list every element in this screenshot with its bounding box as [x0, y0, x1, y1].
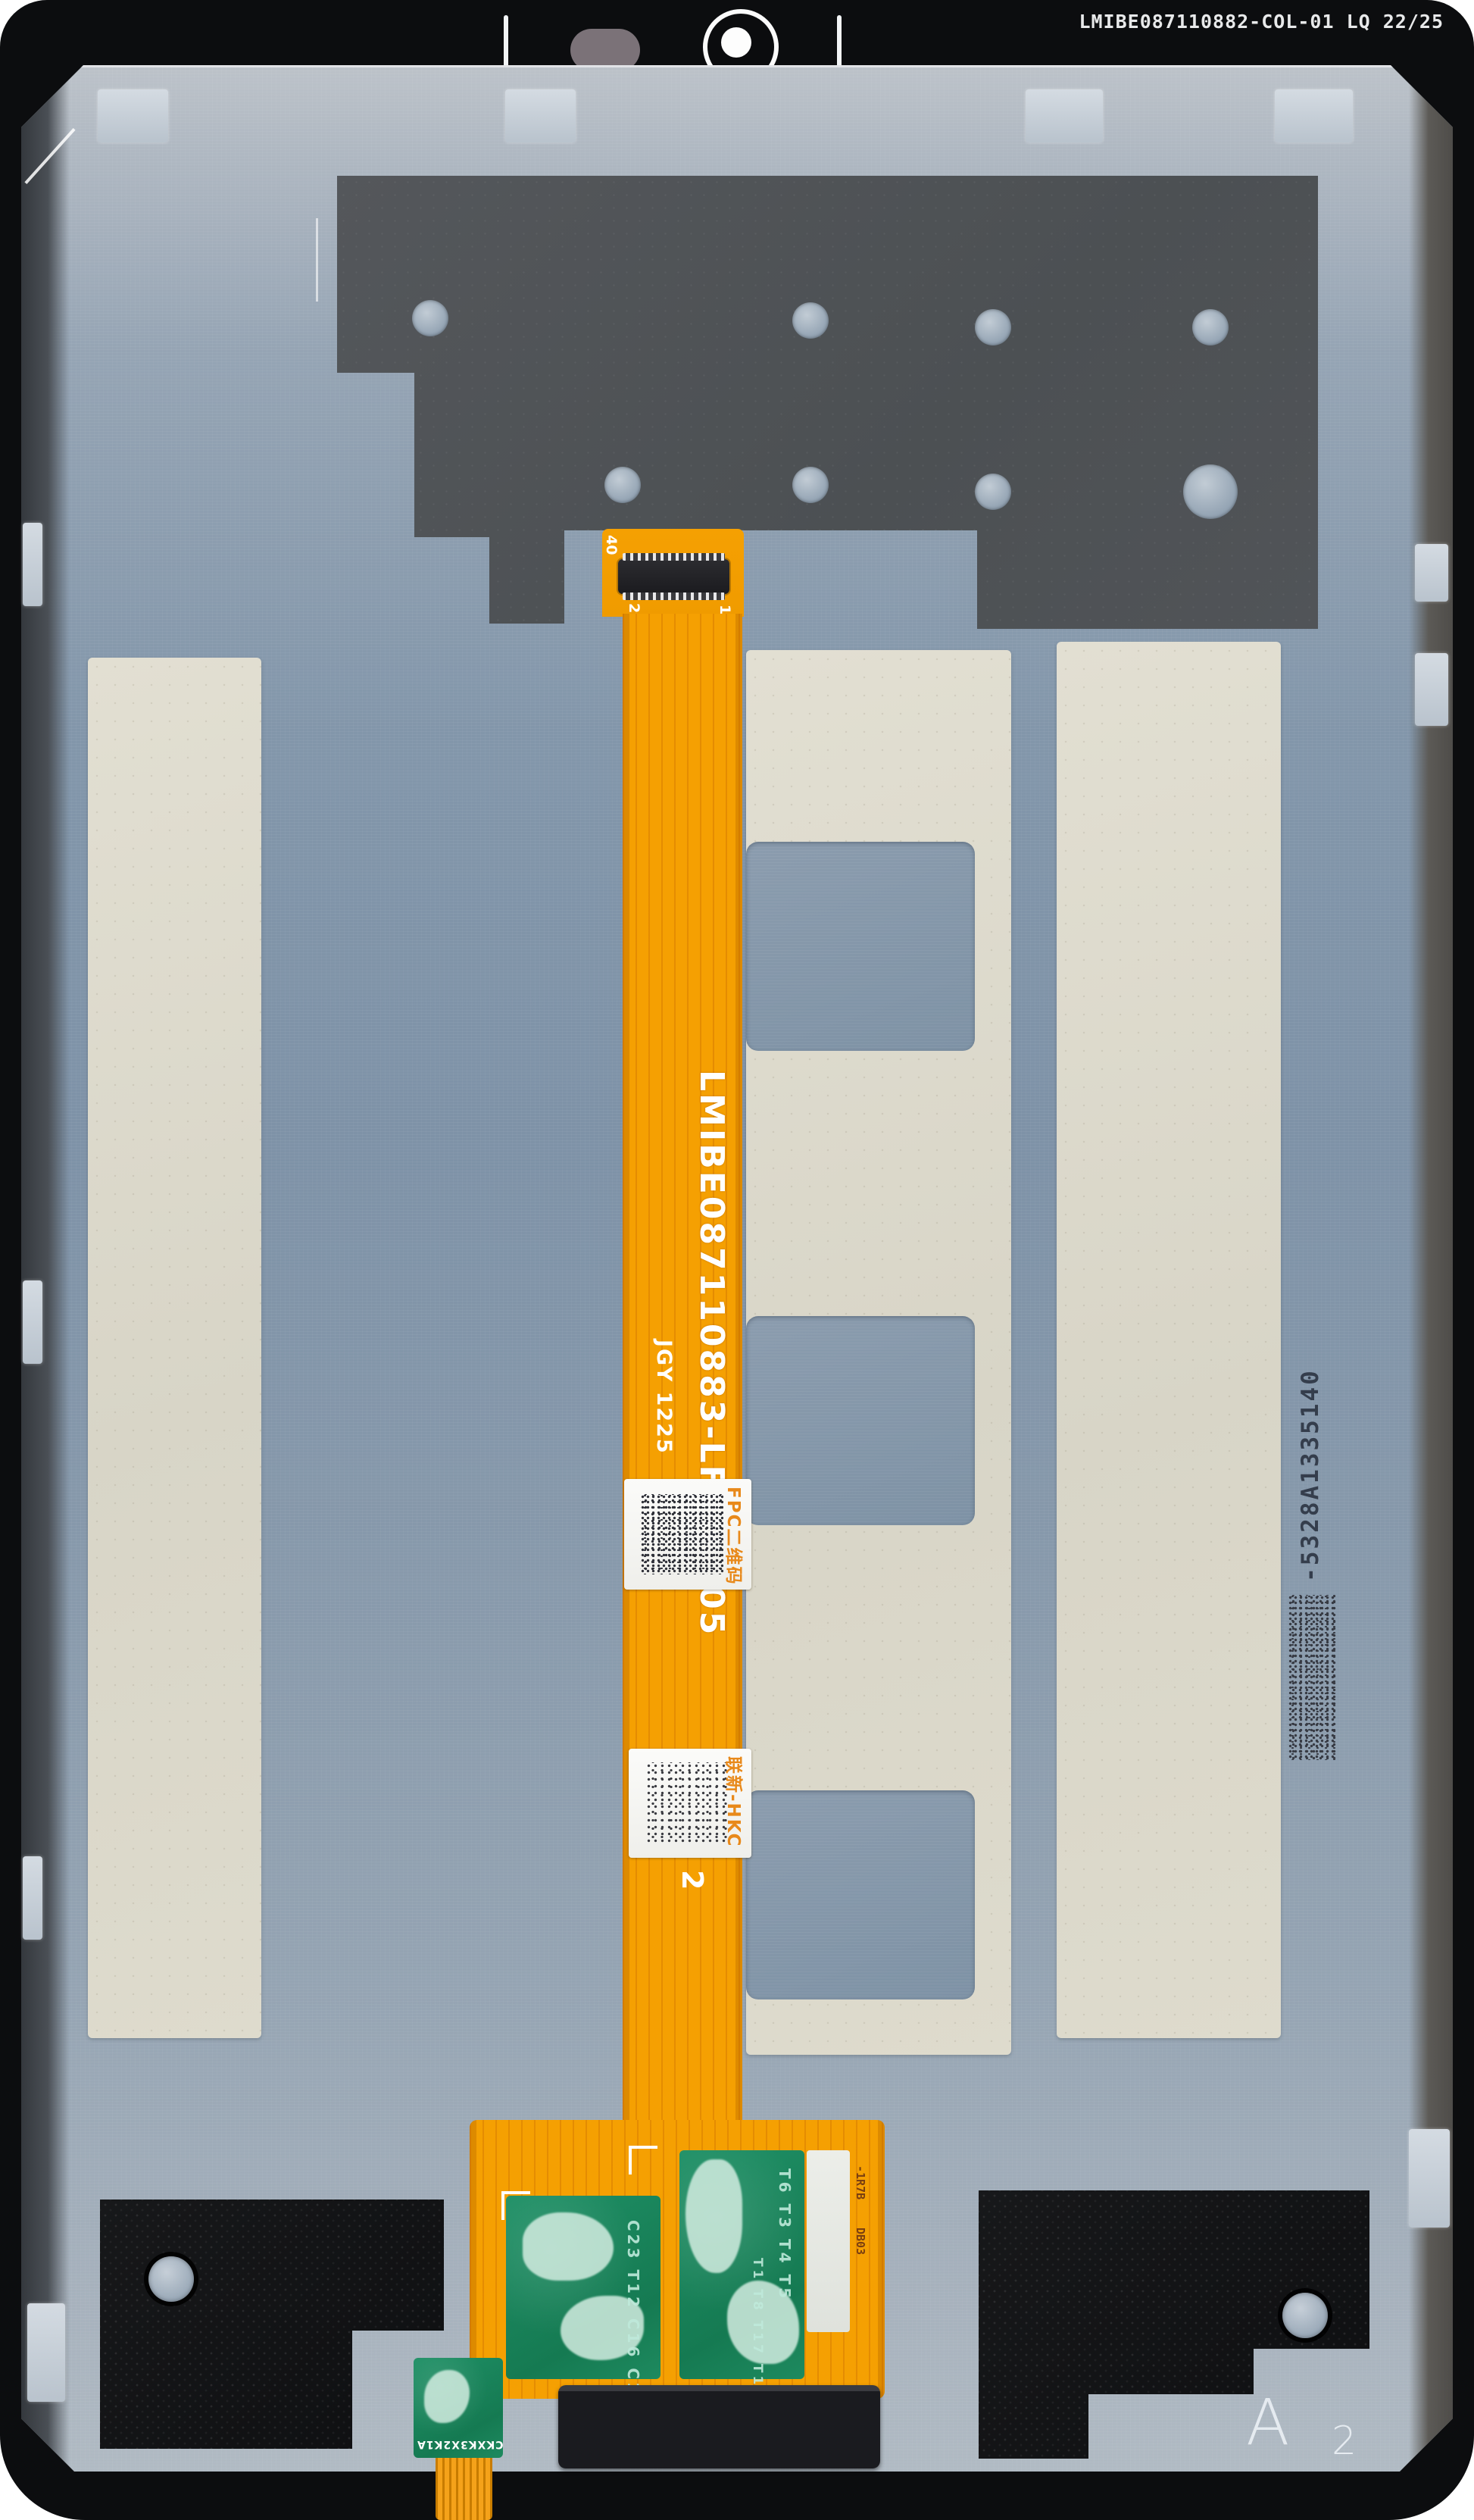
front-camera-lens	[721, 27, 751, 58]
board-connector	[618, 559, 729, 594]
screw-hole	[604, 467, 641, 503]
plate-right-wall	[1409, 65, 1453, 2472]
edge-tab	[27, 2303, 65, 2402]
plate-qr-code	[1288, 1595, 1336, 1760]
pcb-left-refdes: C23 T12 C16 C14	[624, 2220, 642, 2409]
shield-sticker-right	[1057, 642, 1281, 2038]
edge-tab	[98, 89, 168, 142]
conformal-coating-blob	[685, 2159, 742, 2273]
edge-tab	[1415, 653, 1448, 726]
screw-hole-large	[1183, 464, 1238, 519]
screw-hole	[975, 474, 1011, 510]
flex-side-text-2: DB03	[854, 2228, 867, 2255]
plate-left-wall	[21, 65, 70, 2472]
edge-tab	[1415, 544, 1448, 602]
pin-label-40: 40	[603, 535, 620, 555]
connector-pins-bottom	[623, 592, 725, 600]
edge-tab	[1275, 89, 1353, 142]
fpc-qr-caption: FPC二维码	[723, 1487, 748, 1585]
hkc-qr-caption: 联新-HKC	[723, 1756, 748, 1847]
lcd-output-connector	[558, 2385, 880, 2468]
white-stiffener-strip	[807, 2150, 850, 2332]
connector-pins-top	[623, 553, 725, 561]
fpc-datamatrix-code	[640, 1494, 723, 1574]
ladder-window	[746, 1316, 975, 1525]
edge-tab	[23, 1856, 42, 1940]
flex-digit-mark: 2	[676, 1870, 709, 1890]
touch-flex-tail	[436, 2458, 492, 2520]
screw-hole	[792, 302, 829, 339]
screw-hole	[792, 467, 829, 503]
grade-mark-number: 2	[1332, 2418, 1357, 2464]
pcb-right-refdes-2: T1 T8 T17 T16	[750, 2258, 765, 2400]
touch-flex-code: CKXK3X2K1A	[417, 2438, 503, 2450]
fiducial-bracket	[629, 2146, 657, 2175]
flex-date-code: JGY 1225	[652, 1340, 676, 1455]
screw-hole	[1192, 309, 1229, 345]
frame-part-number: LMIBE087110882-COL-01 LQ 22/25	[1079, 11, 1444, 33]
tablet-lcd-assembly-photo: LMIBE087110882-COL-01 LQ 22/25 40 20 1 L…	[0, 0, 1474, 2520]
flex-side-text-1: -1R7B	[854, 2165, 867, 2200]
edge-tab	[505, 89, 576, 142]
pcb-right-refdes: T6 T3 T4 T5	[776, 2168, 794, 2301]
hkc-datamatrix-code	[645, 1762, 729, 1844]
screw-hole	[975, 309, 1011, 345]
ladder-window	[746, 1790, 975, 1999]
sensor-window	[570, 29, 640, 71]
pad-screw-hole	[148, 2256, 194, 2302]
edge-tab	[1026, 89, 1103, 142]
edge-tab	[1409, 2129, 1450, 2228]
edge-tab	[23, 1280, 42, 1364]
scratch-mark	[316, 218, 318, 302]
plate-serial-number: -5328A1335140	[1297, 1354, 1327, 1596]
fiducial-bracket	[501, 2191, 530, 2220]
ladder-window	[746, 842, 975, 1051]
grade-mark-letter: A	[1246, 2385, 1289, 2459]
conformal-coating-blob	[523, 2212, 614, 2281]
edge-tab	[23, 523, 42, 606]
screw-hole	[412, 300, 448, 336]
shield-sticker-left	[88, 658, 261, 2038]
pad-screw-hole	[1282, 2293, 1328, 2338]
